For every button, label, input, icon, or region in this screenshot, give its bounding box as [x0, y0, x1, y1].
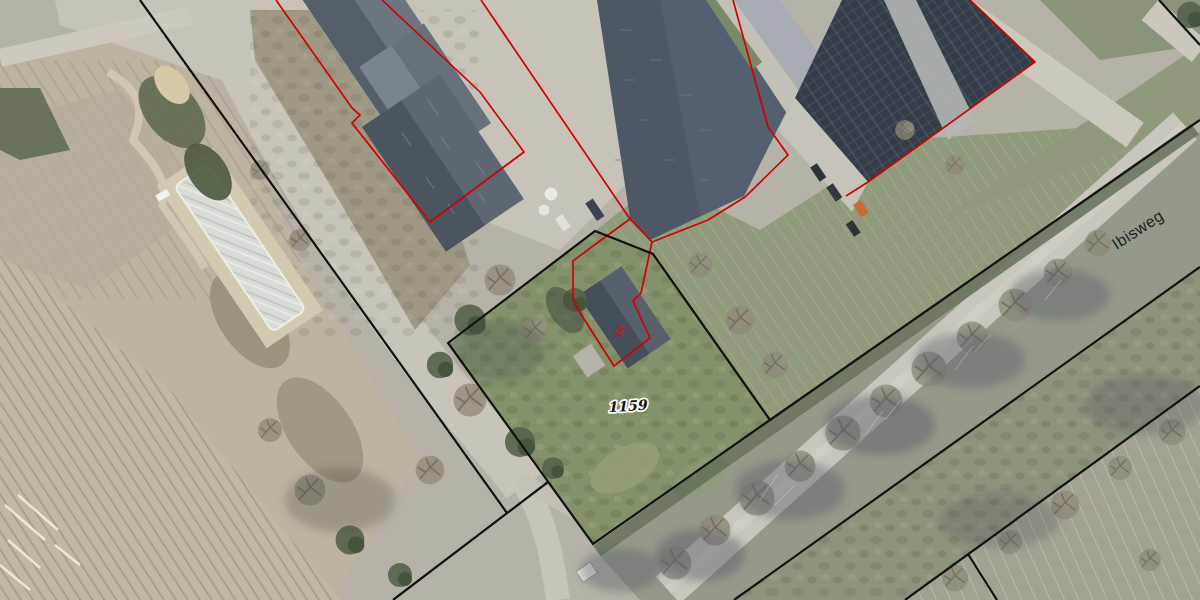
map-canvas[interactable]: 1159 14 Ibisweg	[0, 0, 1200, 600]
parcel-number-label: 1159	[607, 397, 648, 416]
aerial-imagery	[0, 0, 1200, 600]
white-tank	[545, 188, 558, 201]
aerial-map[interactable]: 1159 14 Ibisweg	[0, 0, 1200, 600]
white-tank	[539, 205, 550, 216]
